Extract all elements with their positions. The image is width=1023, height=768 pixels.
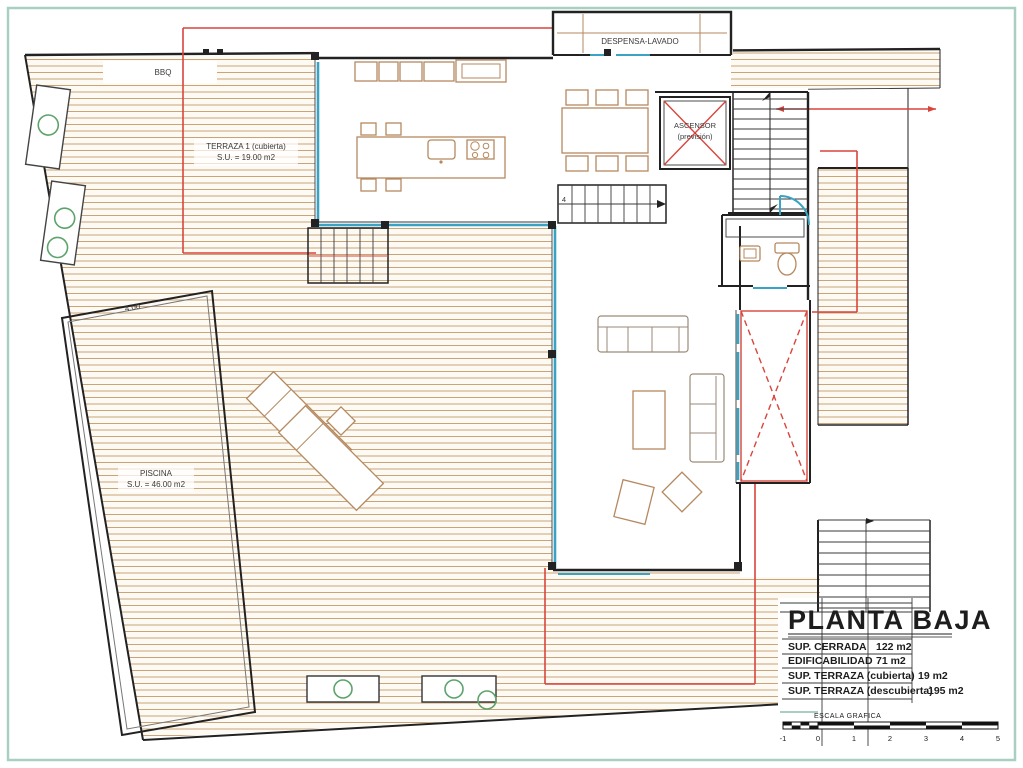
stool	[386, 179, 401, 191]
pool-label: PISCINA	[140, 469, 173, 478]
row-value: 19 m2	[918, 670, 948, 682]
coffee-table	[633, 391, 665, 449]
staircase-exterior-lower	[818, 518, 930, 612]
hob	[467, 140, 494, 159]
scale-tick: 4	[960, 734, 964, 743]
chair	[566, 156, 588, 171]
floor-plan-svg: PISCINA S.U. = 46.00 m2 4.00 BBQ	[0, 0, 1023, 768]
row-label: SUP. CERRADA	[788, 641, 867, 653]
terraza1-label: TERRAZA 1 (cubierta)	[206, 142, 286, 151]
elevator-sublabel: (previsión)	[677, 132, 713, 141]
chair	[626, 156, 648, 171]
row-label: SUP. TERRAZA (descubierta)	[788, 685, 933, 697]
dining-table	[562, 108, 648, 153]
row-value: 122 m2	[876, 641, 912, 653]
row-value: 195 m2	[928, 685, 964, 697]
floor-plan-page: PISCINA S.U. = 46.00 m2 4.00 BBQ	[0, 0, 1023, 768]
stool	[361, 123, 376, 135]
sofa-long	[598, 316, 688, 352]
row-label: EDIFICABILIDAD	[788, 655, 873, 667]
chair	[596, 90, 618, 105]
stair-mark-label: 4	[562, 195, 566, 204]
scale-tick: 5	[996, 734, 1000, 743]
elevator-label: ASCENSOR	[674, 121, 717, 130]
scale-label: ESCALA GRAFICA	[814, 713, 881, 720]
scale-tick: 3	[924, 734, 928, 743]
terraza1-area-label: S.U. = 19.00 m2	[217, 153, 276, 162]
deck-top-right-strip	[731, 49, 940, 90]
pool-area-label: S.U. = 46.00 m2	[127, 480, 186, 489]
terraza1-label-group: TERRAZA 1 (cubierta) S.U. = 19.00 m2	[194, 139, 298, 166]
despensa-label: DESPENSA-LAVADO	[601, 37, 679, 46]
sink	[428, 140, 455, 159]
chair	[626, 90, 648, 105]
deck-right-terrace	[818, 168, 908, 425]
planter-1	[307, 676, 379, 702]
bbq-counter: BBQ	[103, 61, 217, 83]
bathroom-sink	[740, 246, 760, 261]
scale-tick: -1	[780, 734, 787, 743]
title-block: PLANTA BAJA SUP. CERRADA 122 m2 EDIFICAB…	[778, 518, 1015, 750]
scale-tick: 1	[852, 734, 856, 743]
sofa-short	[690, 374, 724, 462]
row-label: SUP. TERRAZA (cubierta)	[788, 670, 915, 682]
chair	[596, 156, 618, 171]
bbq-label: BBQ	[155, 68, 172, 77]
scale-tick: 2	[888, 734, 892, 743]
plan-title: PLANTA BAJA	[788, 605, 992, 635]
dining-set	[562, 90, 648, 171]
stool	[361, 179, 376, 191]
chair	[566, 90, 588, 105]
row-value: 71 m2	[876, 655, 906, 667]
kitchen-counter	[355, 60, 506, 82]
scale-tick: 0	[816, 734, 820, 743]
stool	[386, 123, 401, 135]
